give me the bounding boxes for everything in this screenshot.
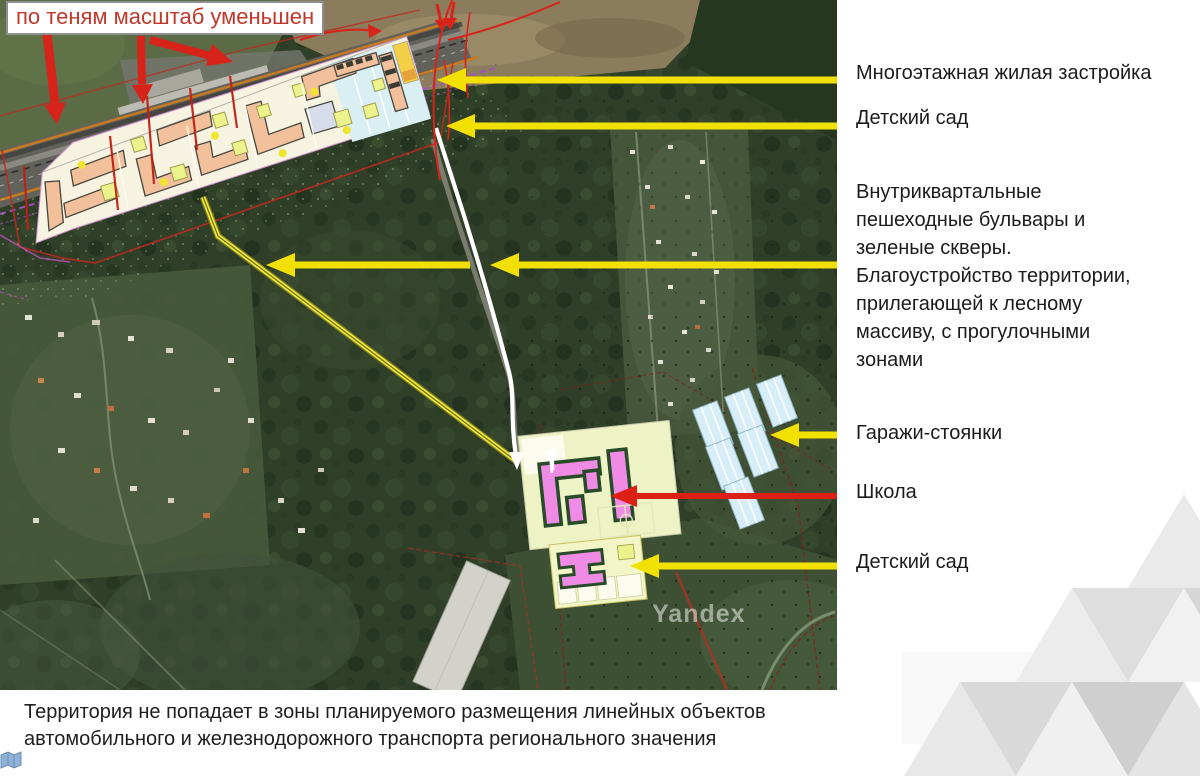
satellite-map: по теням масштаб уменьшен Yandex — [0, 0, 837, 690]
kindergarten-plot — [549, 535, 647, 608]
map-icon — [0, 750, 22, 770]
footer-text: Территория не попадает в зоны планируемо… — [24, 699, 904, 753]
label-kindergarten-top: Детский сад — [856, 106, 968, 130]
label-boulevards: Внутриквартальные пешеходные бульвары и … — [856, 178, 1200, 374]
label-garages: Гаражи-стоянки — [856, 421, 1002, 445]
yandex-watermark: Yandex — [652, 600, 746, 629]
school-plot — [518, 420, 681, 549]
map-note: по теням масштаб уменьшен — [6, 1, 324, 35]
map-canvas — [0, 0, 837, 690]
slide: по теням масштаб уменьшен Yandex Многоэт… — [0, 0, 1200, 776]
triangle-mosaic-decoration — [900, 494, 1200, 776]
label-residential: Многоэтажная жилая застройка — [856, 61, 1151, 85]
